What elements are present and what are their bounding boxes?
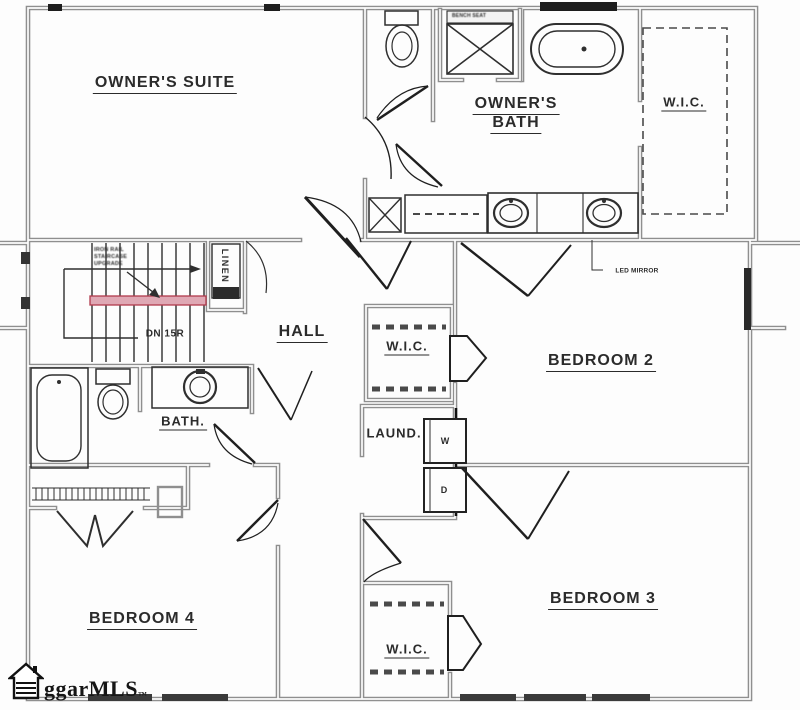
bench-seat-label: BENCH SEAT xyxy=(452,13,486,19)
hall-bath-label: BATH. xyxy=(159,414,207,431)
wic2-door xyxy=(450,336,486,381)
bedroom3-label: BEDROOM 3 xyxy=(548,590,658,610)
wic-owners-label: W.I.C. xyxy=(661,95,706,112)
toilet xyxy=(96,369,130,419)
stair-note-2: STAIRCASE xyxy=(94,254,127,260)
dryer-label: D xyxy=(441,485,448,495)
double-vanity xyxy=(488,193,638,233)
mls-house-icon xyxy=(8,662,44,700)
laundry-label: LAUND. xyxy=(366,426,421,441)
toilet xyxy=(385,11,418,67)
stair-highlight xyxy=(90,296,206,305)
led-mirror-label: LED MIRROR xyxy=(615,268,658,275)
washer-label: W xyxy=(441,436,450,446)
owners-bath-label-1: OWNER'S xyxy=(473,95,560,115)
wic-bedroom2-label: W.I.C. xyxy=(384,339,429,356)
cabinet-dashed xyxy=(405,195,487,233)
owners-bath-label-2: BATH xyxy=(490,114,541,134)
owners-bath-fixtures xyxy=(369,10,638,270)
vanity xyxy=(152,367,248,408)
owners-suite-label: OWNER'S SUITE xyxy=(93,74,237,94)
bedroom2-label: BEDROOM 2 xyxy=(546,352,656,372)
stair-note-1: IRON RAIL xyxy=(94,247,124,253)
wic-bedroom3-label: W.I.C. xyxy=(384,642,429,659)
tub xyxy=(31,368,88,468)
wic3-door xyxy=(448,616,481,670)
bifold-doors xyxy=(57,511,133,546)
cabinet-x xyxy=(369,198,401,232)
floor-plan: OWNER'S SUITE OWNER'S BATH W.I.C. HALL W… xyxy=(0,0,800,710)
watermark-text: ggarMLS xyxy=(44,678,138,700)
bedroom4-label: BEDROOM 4 xyxy=(87,610,197,630)
arrowhead xyxy=(190,265,201,273)
stair-direction-label: DN 15R xyxy=(146,329,185,340)
shower xyxy=(440,10,520,80)
hall-label: HALL xyxy=(277,323,328,343)
laundry-appliances xyxy=(424,408,466,516)
linen-label: LINEN xyxy=(220,249,230,284)
stair-note-3: UPGRADE xyxy=(94,261,123,267)
bedroom4-closet xyxy=(32,487,182,546)
staircase xyxy=(64,243,206,362)
watermark-tm: ™ xyxy=(138,691,147,700)
mls-watermark: ggarMLS™ xyxy=(8,662,147,700)
led-mirror-leader xyxy=(592,240,603,270)
bathtub xyxy=(531,24,623,74)
